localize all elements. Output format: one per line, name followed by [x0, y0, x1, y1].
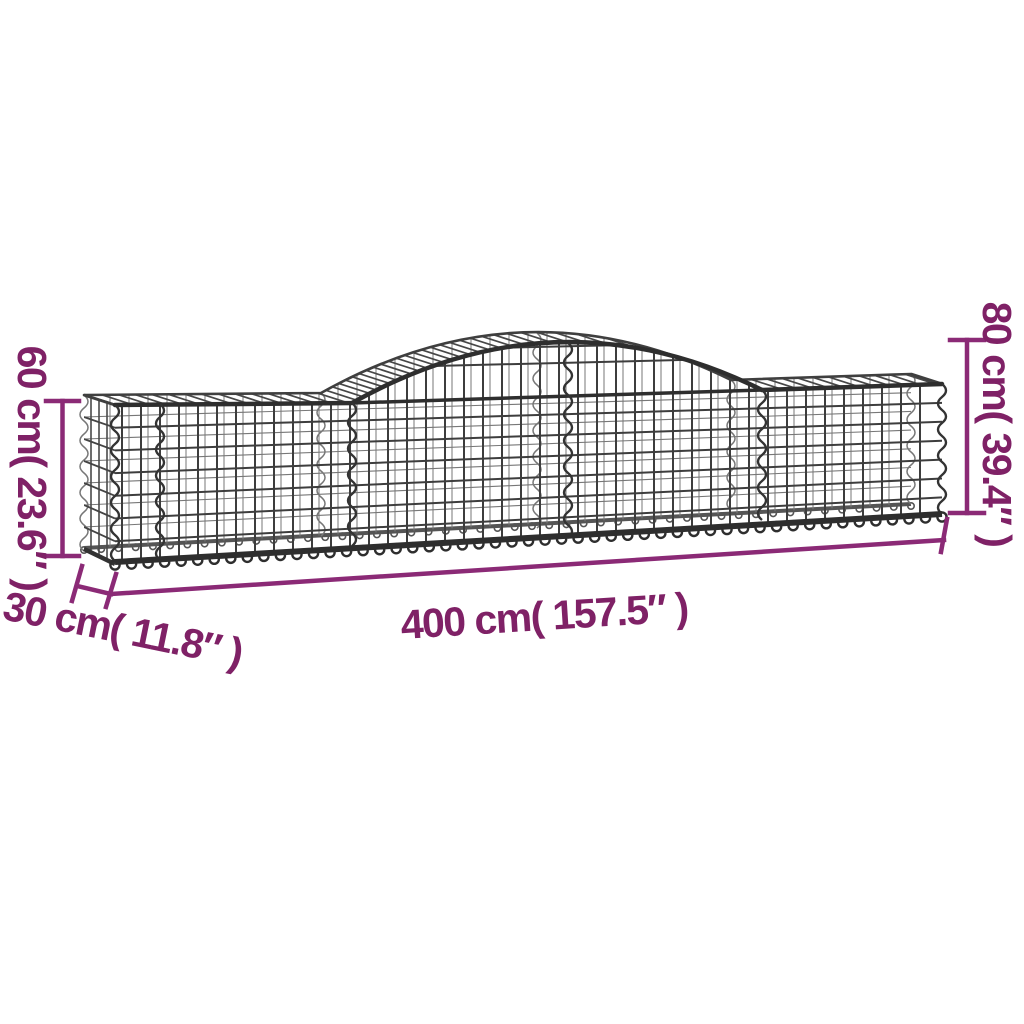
front-spiral-seam: [348, 403, 356, 546]
top-band-hatch: [0, 330, 522, 640]
top-band-hatch: [394, 330, 1024, 640]
top-band-hatch: [377, 330, 1024, 640]
diagram-canvas: 60 cm( 23.6″ ) 80 cm( 39.4″ ) 30 cm( 11.…: [0, 0, 1024, 1024]
top-band-hatch: [0, 330, 539, 640]
depth-label: 30 cm( 11.8″ ): [0, 583, 246, 676]
width-right-tick: [941, 519, 947, 552]
front-spiral-seam: [564, 343, 572, 538]
height-right-label: 80 cm( 39.4″ ): [974, 302, 1020, 547]
back-spiral-seam: [907, 374, 915, 504]
dimension-height-left: 60 cm( 23.6″ ): [9, 346, 79, 591]
product-dimension-diagram: 60 cm( 23.6″ ) 80 cm( 39.4″ ) 30 cm( 11.…: [0, 0, 1024, 1024]
depth-dimension-line: [77, 586, 111, 594]
top-band-hatch: [0, 330, 556, 640]
dimension-height-right: 80 cm( 39.4″ ): [950, 302, 1020, 547]
width-label: 400 cm( 157.5″ ): [399, 584, 689, 648]
height-left-label: 60 cm( 23.6″ ): [9, 346, 55, 591]
